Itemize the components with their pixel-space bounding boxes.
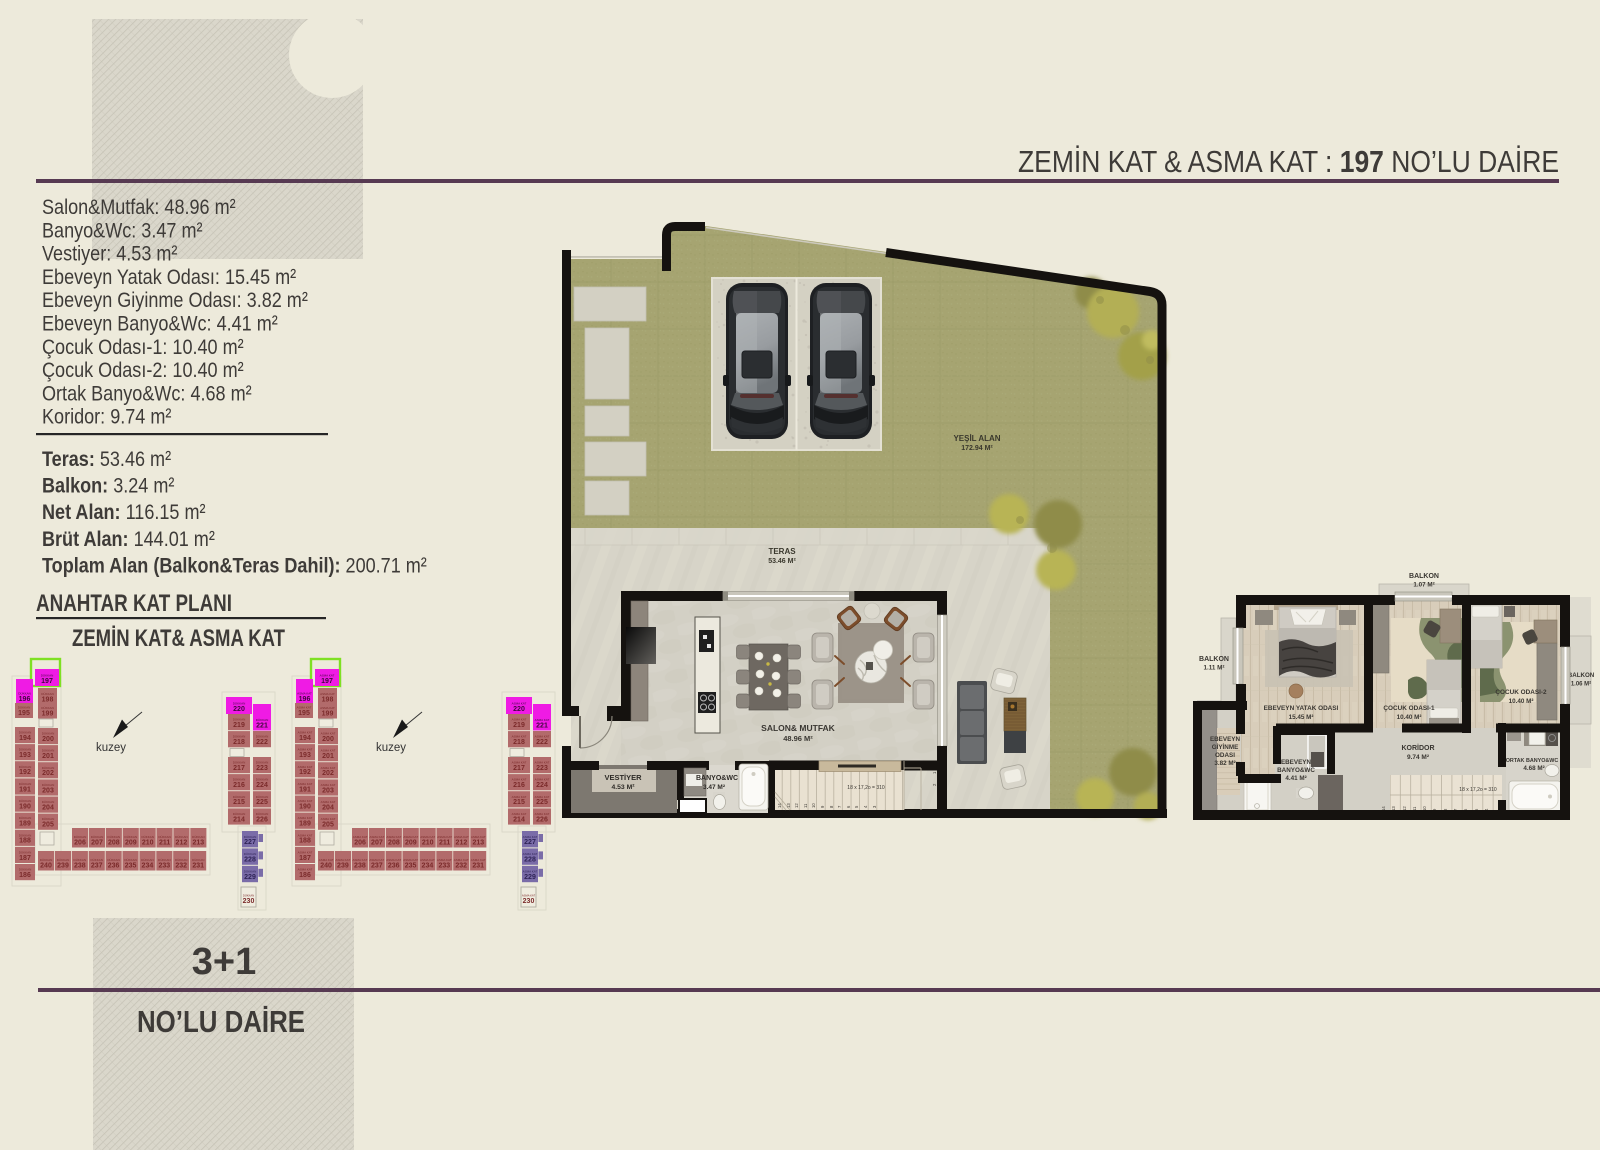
svg-text:ASMA KAT: ASMA KAT [336,858,351,862]
svg-text:ODASI: ODASI [1215,752,1235,759]
svg-text:202: 202 [42,770,54,777]
svg-text:221: 221 [536,722,548,729]
svg-text:DÜKKAN: DÜKKAN [18,691,31,695]
svg-text:203: 203 [42,787,54,794]
svg-text:TERAS: TERAS [768,547,796,556]
svg-text:18 x 17,2o = 310: 18 x 17,2o = 310 [1459,787,1497,793]
svg-text:DÜKKAN: DÜKKAN [256,795,269,799]
svg-text:ÇOCUK ODASI-2: ÇOCUK ODASI-2 [1495,689,1547,696]
svg-text:ASMA KAT: ASMA KAT [353,858,368,862]
svg-text:223: 223 [256,765,268,772]
svg-text:DÜKKAN: DÜKKAN [175,858,188,862]
svg-text:BALKON: BALKON [1199,656,1229,663]
svg-text:ASMA KAT: ASMA KAT [535,735,550,739]
svg-text:13: 13 [786,803,791,808]
svg-text:172.94 M²: 172.94 M² [961,445,993,452]
svg-text:213: 213 [472,839,484,846]
svg-text:230: 230 [523,898,535,905]
svg-text:ASMA KAT: ASMA KAT [535,812,550,816]
svg-text:DÜKKAN: DÜKKAN [244,835,257,839]
svg-text:205: 205 [42,822,54,829]
svg-text:211: 211 [159,839,170,846]
svg-text:194: 194 [299,735,311,742]
svg-text:ANAHTAR KAT PLANI: ANAHTAR KAT PLANI [36,590,232,617]
svg-text:ORTAK BANYO&WC: ORTAK BANYO&WC [1506,758,1559,764]
svg-text:ASMA KAT: ASMA KAT [298,799,313,803]
svg-text:226: 226 [536,816,548,823]
svg-text:ASMA KAT: ASMA KAT [321,732,336,736]
svg-text:240: 240 [320,862,332,869]
svg-text:Salon&Mutfak: 48.96 m²: Salon&Mutfak: 48.96 m² [42,196,236,220]
svg-text:201: 201 [42,753,54,760]
svg-text:198: 198 [322,696,334,703]
svg-text:186: 186 [19,872,31,879]
svg-text:197: 197 [321,678,333,685]
svg-text:ASMA KAT: ASMA KAT [523,852,538,856]
svg-text:233: 233 [438,862,450,869]
svg-text:196: 196 [19,696,31,703]
svg-text:ASMA KAT: ASMA KAT [420,835,435,839]
svg-text:ASMA KAT: ASMA KAT [298,868,313,872]
svg-text:186: 186 [299,872,311,879]
svg-text:DÜKKAN: DÜKKAN [256,718,269,722]
svg-text:199: 199 [42,710,54,717]
svg-text:DÜKKAN: DÜKKAN [42,766,55,770]
svg-text:207: 207 [91,839,103,846]
svg-text:ASMA KAT: ASMA KAT [386,858,401,862]
svg-text:kuzey: kuzey [376,742,406,754]
svg-text:VESTİYER: VESTİYER [604,773,642,782]
svg-text:DÜKKAN: DÜKKAN [42,800,55,804]
svg-text:YEŞİL ALAN: YEŞİL ALAN [953,434,1000,443]
svg-text:ASMA KAT: ASMA KAT [321,766,336,770]
svg-text:ASMA KAT: ASMA KAT [403,858,418,862]
svg-text:DÜKKAN: DÜKKAN [19,748,32,752]
svg-text:4.68 M²: 4.68 M² [1523,765,1544,772]
svg-text:Net Alan: 116.15 m²: Net Alan: 116.15 m² [42,501,206,525]
svg-text:ASMA KAT: ASMA KAT [454,835,469,839]
svg-text:4.53 M²: 4.53 M² [611,784,635,791]
svg-text:DÜKKAN: DÜKKAN [90,858,103,862]
svg-text:DÜKKAN: DÜKKAN [243,893,254,897]
svg-text:DÜKKAN: DÜKKAN [141,835,154,839]
svg-text:10.40 M²: 10.40 M² [1397,714,1422,721]
svg-text:218: 218 [233,739,245,746]
svg-text:204: 204 [42,805,54,812]
svg-text:208: 208 [388,839,400,846]
svg-text:229: 229 [244,874,256,881]
svg-text:189: 189 [19,821,31,828]
svg-text:ASMA KAT: ASMA KAT [298,731,313,735]
svg-text:237: 237 [371,862,383,869]
svg-text:DÜKKAN: DÜKKAN [233,761,246,765]
svg-text:10: 10 [811,803,816,808]
svg-text:191: 191 [19,786,31,793]
svg-text:ASMA KAT: ASMA KAT [437,858,452,862]
svg-text:220: 220 [513,706,525,713]
svg-text:ASMA KAT: ASMA KAT [370,835,385,839]
svg-text:Ebeveyn Giyinme Odası: 3.82 m²: Ebeveyn Giyinme Odası: 3.82 m² [42,289,308,313]
svg-text:ASMA KAT: ASMA KAT [369,858,384,862]
svg-text:ASMA KAT: ASMA KAT [535,718,550,722]
svg-text:DÜKKAN: DÜKKAN [19,765,32,769]
svg-text:196: 196 [299,696,311,703]
svg-text:232: 232 [455,862,467,869]
svg-text:223: 223 [536,765,548,772]
svg-text:ASMA KAT: ASMA KAT [320,692,335,696]
svg-text:236: 236 [388,862,400,869]
svg-text:209: 209 [405,839,417,846]
svg-text:220: 220 [233,706,245,713]
svg-text:ASMA KAT: ASMA KAT [320,673,335,677]
svg-text:190: 190 [299,804,311,811]
svg-text:DÜKKAN: DÜKKAN [19,799,32,803]
svg-text:ASMA KAT: ASMA KAT [512,778,527,782]
svg-text:211: 211 [439,839,450,846]
svg-text:ASMA KAT: ASMA KAT [298,765,313,769]
svg-text:188: 188 [19,838,31,845]
svg-text:DÜKKAN: DÜKKAN [40,858,53,862]
svg-text:DÜKKAN: DÜKKAN [19,816,32,820]
svg-text:206: 206 [74,839,86,846]
svg-text:10.40 M²: 10.40 M² [1509,698,1534,705]
svg-text:3.82 M²: 3.82 M² [1214,760,1235,767]
svg-text:235: 235 [125,862,137,869]
svg-text:DÜKKAN: DÜKKAN [256,812,269,816]
svg-text:DÜKKAN: DÜKKAN [233,701,246,705]
svg-text:9.74 M²: 9.74 M² [1407,754,1430,761]
svg-text:DÜKKAN: DÜKKAN [19,731,32,735]
svg-text:ASMA KAT: ASMA KAT [321,783,336,787]
svg-text:212: 212 [456,839,468,846]
svg-text:ASMA KAT: ASMA KAT [321,817,336,821]
svg-text:Vestiyer: 4.53 m²: Vestiyer: 4.53 m² [42,242,178,266]
svg-text:DÜKKAN: DÜKKAN [256,761,269,765]
svg-text:221: 221 [256,722,268,729]
svg-text:216: 216 [513,782,525,789]
svg-text:ASMA KAT: ASMA KAT [512,812,527,816]
svg-text:DÜKKAN: DÜKKAN [18,705,31,709]
svg-text:228: 228 [244,857,256,864]
svg-text:KORİDOR: KORİDOR [1401,744,1434,752]
svg-text:ASMA KAT: ASMA KAT [512,761,527,765]
svg-text:ASMA KAT: ASMA KAT [535,778,550,782]
svg-text:229: 229 [524,874,536,881]
svg-text:ASMA KAT: ASMA KAT [471,835,486,839]
svg-text:Koridor: 9.74 m²: Koridor: 9.74 m² [42,405,172,429]
svg-text:195: 195 [18,710,30,717]
svg-text:237: 237 [91,862,103,869]
svg-text:ASMA KAT: ASMA KAT [454,858,469,862]
svg-text:238: 238 [354,862,366,869]
svg-text:ASMA KAT: ASMA KAT [297,705,312,709]
svg-text:DÜKKAN: DÜKKAN [42,732,55,736]
svg-text:225: 225 [256,799,268,806]
svg-text:53.46 M²: 53.46 M² [768,558,796,565]
svg-text:Çocuk Odası-2: 10.40 m²: Çocuk Odası-2: 10.40 m² [42,359,244,383]
svg-text:EBEVEYN: EBEVEYN [1281,759,1312,766]
svg-text:ASMA KAT: ASMA KAT [387,835,402,839]
svg-text:GİYİNME: GİYİNME [1212,743,1239,751]
svg-text:Çocuk Odası-1: 10.40 m²: Çocuk Odası-1: 10.40 m² [42,335,244,359]
svg-text:234: 234 [142,862,154,869]
svg-text:DÜKKAN: DÜKKAN [74,835,87,839]
svg-text:192: 192 [19,769,31,776]
svg-text:224: 224 [536,782,548,789]
svg-text:236: 236 [108,862,120,869]
svg-text:ASMA KAT: ASMA KAT [522,893,536,897]
svg-text:193: 193 [299,752,311,759]
svg-text:Ebeveyn Yatak Odası: 15.45 m²: Ebeveyn Yatak Odası: 15.45 m² [42,265,297,289]
svg-text:ASMA KAT: ASMA KAT [523,870,538,874]
svg-text:Ebeveyn Banyo&Wc: 4.41 m²: Ebeveyn Banyo&Wc: 4.41 m² [42,312,278,336]
svg-text:DÜKKAN: DÜKKAN [158,858,171,862]
svg-text:ASMA KAT: ASMA KAT [523,835,538,839]
svg-text:217: 217 [513,765,525,772]
svg-text:DÜKKAN: DÜKKAN [91,835,104,839]
svg-text:DÜKKAN: DÜKKAN [124,858,137,862]
svg-text:DÜKKAN: DÜKKAN [175,835,188,839]
svg-text:198: 198 [42,696,54,703]
svg-text:227: 227 [524,839,536,846]
svg-text:DÜKKAN: DÜKKAN [41,692,54,696]
svg-text:ASMA KAT: ASMA KAT [297,691,312,695]
svg-text:224: 224 [256,782,268,789]
svg-text:DÜKKAN: DÜKKAN [42,783,55,787]
svg-text:DÜKKAN: DÜKKAN [42,817,55,821]
svg-text:DÜKKAN: DÜKKAN [19,850,32,854]
svg-text:Banyo&Wc: 3.47 m²: Banyo&Wc: 3.47 m² [42,219,203,243]
svg-text:189: 189 [299,821,311,828]
svg-text:DÜKKAN: DÜKKAN [74,858,87,862]
svg-text:190: 190 [19,804,31,811]
svg-text:ASMA KAT: ASMA KAT [298,748,313,752]
svg-text:187: 187 [299,855,311,862]
svg-text:218: 218 [513,739,525,746]
svg-text:ASMA KAT: ASMA KAT [535,761,550,765]
svg-text:ASMA KAT: ASMA KAT [420,858,435,862]
svg-text:BALKON: BALKON [1409,573,1439,580]
svg-text:187: 187 [19,855,31,862]
svg-text:ASMA KAT: ASMA KAT [512,701,527,705]
svg-text:Brüt Alan: 144.01 m²: Brüt Alan: 144.01 m² [42,527,215,551]
svg-text:238: 238 [74,862,86,869]
svg-text:ASMA KAT: ASMA KAT [535,795,550,799]
svg-text:222: 222 [536,739,548,746]
svg-text:228: 228 [524,857,536,864]
svg-text:194: 194 [19,735,31,742]
svg-text:214: 214 [233,816,245,823]
svg-text:ASMA KAT: ASMA KAT [471,858,486,862]
svg-text:239: 239 [337,862,349,869]
svg-text:1.06 M²: 1.06 M² [1571,681,1591,688]
svg-text:213: 213 [192,839,204,846]
svg-text:240: 240 [40,862,52,869]
svg-text:ASMA KAT: ASMA KAT [437,835,452,839]
svg-text:15.45 M²: 15.45 M² [1289,714,1314,721]
svg-text:ASMA KAT: ASMA KAT [512,735,527,739]
svg-text:192: 192 [299,769,311,776]
svg-text:DÜKKAN: DÜKKAN [41,706,54,710]
svg-text:232: 232 [175,862,187,869]
svg-text:BANYO&WC: BANYO&WC [1277,767,1315,774]
svg-text:DÜKKAN: DÜKKAN [244,870,257,874]
svg-text:DÜKKAN: DÜKKAN [233,812,246,816]
svg-text:200: 200 [322,736,334,743]
svg-text:195: 195 [298,710,310,717]
svg-text:DÜKKAN: DÜKKAN [42,749,55,753]
svg-text:ASMA KAT: ASMA KAT [298,833,313,837]
svg-text:215: 215 [233,799,245,806]
svg-text:4.41 M²: 4.41 M² [1285,775,1306,782]
svg-text:201: 201 [322,753,334,760]
svg-text:48.96 M²: 48.96 M² [783,734,813,743]
svg-text:DÜKKAN: DÜKKAN [19,833,32,837]
svg-text:12: 12 [794,803,799,808]
svg-text:DÜKKAN: DÜKKAN [108,835,121,839]
svg-text:227: 227 [244,839,256,846]
svg-text:230: 230 [243,898,255,905]
svg-text:205: 205 [322,822,334,829]
svg-text:DÜKKAN: DÜKKAN [233,795,246,799]
svg-text:EBEVEYN YATAK ODASI: EBEVEYN YATAK ODASI [1264,705,1339,712]
svg-text:SALON& MUTFAK: SALON& MUTFAK [761,723,836,733]
svg-text:188: 188 [299,838,311,845]
svg-text:200: 200 [42,736,54,743]
svg-text:ÇOCUK ODASI-1: ÇOCUK ODASI-1 [1383,705,1435,712]
svg-text:14: 14 [777,803,782,808]
svg-text:233: 233 [158,862,170,869]
svg-text:DÜKKAN: DÜKKAN [233,718,246,722]
svg-text:ASMA KAT: ASMA KAT [298,850,313,854]
svg-text:204: 204 [322,805,334,812]
svg-text:DÜKKAN: DÜKKAN [233,735,246,739]
svg-text:BANYO&WC: BANYO&WC [696,775,738,782]
svg-text:3.47 M²: 3.47 M² [703,784,726,791]
svg-text:215: 215 [513,799,525,806]
svg-text:217: 217 [233,765,245,772]
svg-text:DÜKKAN: DÜKKAN [244,852,257,856]
svg-text:Toplam Alan (Balkon&Teras Dahi: Toplam Alan (Balkon&Teras Dahil): 200.71… [42,554,427,578]
svg-text:208: 208 [108,839,120,846]
svg-text:DÜKKAN: DÜKKAN [256,778,269,782]
svg-text:DÜKKAN: DÜKKAN [107,858,120,862]
svg-text:231: 231 [192,862,204,869]
svg-text:ASMA KAT: ASMA KAT [321,800,336,804]
svg-text:209: 209 [125,839,137,846]
svg-text:222: 222 [256,739,268,746]
svg-text:234: 234 [422,862,434,869]
svg-text:231: 231 [472,862,484,869]
svg-text:DÜKKAN: DÜKKAN [19,782,32,786]
svg-text:kuzey: kuzey [96,742,126,754]
svg-text:197: 197 [41,678,53,685]
svg-text:191: 191 [299,786,311,793]
svg-text:214: 214 [513,816,525,823]
svg-text:NO’LU DAİRE: NO’LU DAİRE [137,1004,305,1039]
svg-text:ZEMİN KAT & ASMA KAT : 197 NO’: ZEMİN KAT & ASMA KAT : 197 NO’LU DAİRE [1018,144,1559,179]
svg-text:DÜKKAN: DÜKKAN [192,835,205,839]
svg-text:DÜKKAN: DÜKKAN [57,858,70,862]
svg-text:BALKON: BALKON [1568,672,1595,679]
svg-text:212: 212 [176,839,188,846]
svg-text:DÜKKAN: DÜKKAN [19,868,32,872]
svg-text:202: 202 [322,770,334,777]
svg-text:3+1: 3+1 [192,941,256,983]
svg-text:216: 216 [233,782,245,789]
svg-text:DÜKKAN: DÜKKAN [141,858,154,862]
svg-text:EBEVEYN: EBEVEYN [1210,736,1241,743]
svg-text:ASMA KAT: ASMA KAT [321,749,336,753]
svg-text:193: 193 [19,752,31,759]
svg-text:DÜKKAN: DÜKKAN [158,835,171,839]
svg-text:203: 203 [322,787,334,794]
svg-text:226: 226 [256,816,268,823]
svg-text:206: 206 [354,839,366,846]
svg-text:Ortak Banyo&Wc: 4.68 m²: Ortak Banyo&Wc: 4.68 m² [42,382,252,406]
svg-text:ASMA KAT: ASMA KAT [512,795,527,799]
svg-text:ASMA KAT: ASMA KAT [320,706,335,710]
svg-text:ASMA KAT: ASMA KAT [403,835,418,839]
svg-text:235: 235 [405,862,417,869]
svg-text:ASMA KAT: ASMA KAT [298,816,313,820]
svg-text:1.11 M²: 1.11 M² [1204,665,1225,672]
svg-text:Teras: 53.46 m²: Teras: 53.46 m² [42,448,171,472]
svg-text:DÜKKAN: DÜKKAN [192,858,205,862]
svg-text:DÜKKAN: DÜKKAN [233,778,246,782]
svg-text:Balkon: 3.24 m²: Balkon: 3.24 m² [42,474,175,498]
svg-text:ASMA KAT: ASMA KAT [298,782,313,786]
svg-text:ASMA KAT: ASMA KAT [512,718,527,722]
svg-text:18 x 17,2o = 310: 18 x 17,2o = 310 [847,785,885,791]
svg-text:207: 207 [371,839,383,846]
svg-text:DÜKKAN: DÜKKAN [41,673,54,677]
svg-text:DÜKKAN: DÜKKAN [125,835,138,839]
svg-text:219: 219 [513,722,525,729]
svg-text:ZEMİN KAT& ASMA KAT: ZEMİN KAT& ASMA KAT [72,625,285,652]
svg-text:210: 210 [142,839,154,846]
svg-text:219: 219 [233,722,245,729]
svg-text:225: 225 [536,799,548,806]
svg-text:239: 239 [57,862,69,869]
svg-text:ASMA KAT: ASMA KAT [319,858,334,862]
svg-text:ASMA KAT: ASMA KAT [353,835,368,839]
svg-text:DÜKKAN: DÜKKAN [256,735,269,739]
svg-text:199: 199 [322,710,334,717]
svg-text:11: 11 [803,803,808,808]
svg-text:1.07 M²: 1.07 M² [1413,582,1434,589]
svg-text:210: 210 [422,839,434,846]
